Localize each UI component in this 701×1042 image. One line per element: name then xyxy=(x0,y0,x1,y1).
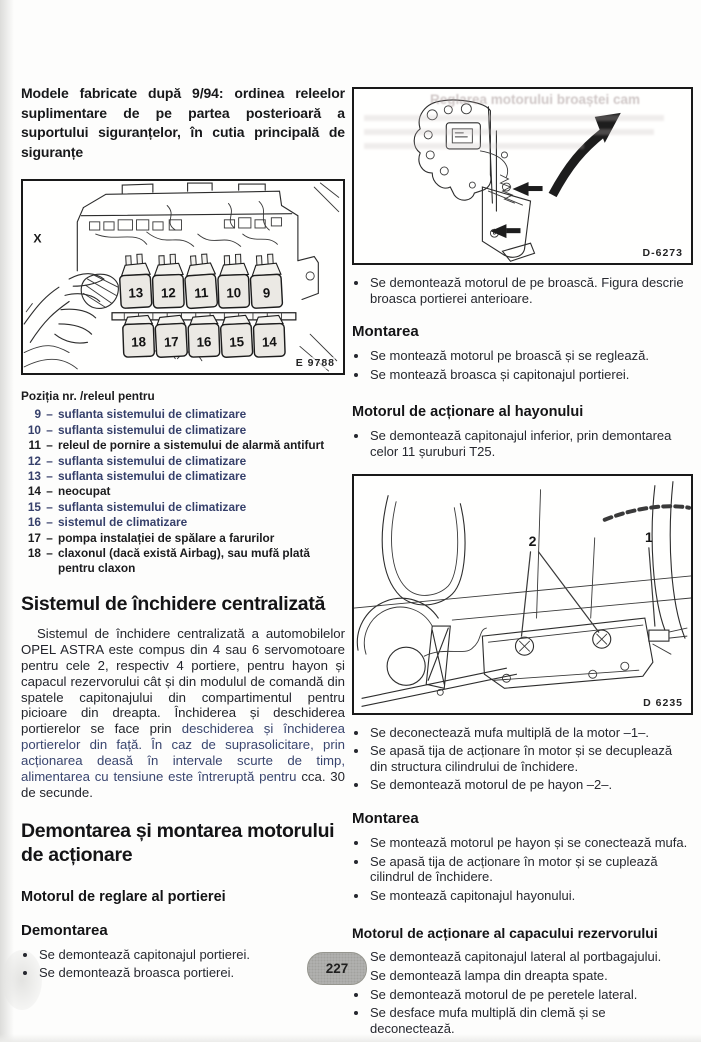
subheading-fuel-cap-motor: Motorul de acționare al capacului rezerv… xyxy=(352,925,693,941)
subheading-tailgate-motor: Motorul de acționare al hayonului xyxy=(352,404,693,420)
fuse-box-illustration: 13 12 11 10 xyxy=(23,181,343,373)
bleed-through-line xyxy=(364,115,664,121)
relay-11: 11 xyxy=(183,254,217,309)
relay-9: 9 xyxy=(249,254,282,309)
tailgate-illustration: 2 1 xyxy=(354,476,691,713)
tailgate-steps-intro: Se demontează capitonajul inferior, prin… xyxy=(352,428,693,459)
legend-row: 17–pompa instalației de spălare a faruri… xyxy=(21,531,345,546)
relay-number: 13 xyxy=(128,285,144,301)
relay-12: 12 xyxy=(152,254,184,308)
legend-row: 12–suflanta sistemului de climatizare xyxy=(21,454,345,469)
legend-row: 16–sistemul de climatizare xyxy=(21,515,345,530)
list-item: Se demontează capitonajul portierei. xyxy=(38,947,345,963)
left-column: Modele fabricate după 9/94: ordinea rele… xyxy=(21,84,345,981)
list-item: Se demontează motorul de pe hayon –2–. xyxy=(369,777,693,793)
figure-tailgate-motor: 2 1 D 6235 xyxy=(352,474,693,715)
subheading-montarea-2: Montarea xyxy=(352,810,693,827)
page-number-badge: 227 xyxy=(307,952,367,985)
list-item: Se demontează capitonajul lateral al por… xyxy=(369,949,693,965)
bleed-through-line xyxy=(364,143,584,149)
tailgate-install-steps: Se montează motorul pe hayon și se conec… xyxy=(352,835,693,903)
list-item: Se demontează motorul de pe peretele lat… xyxy=(369,987,693,1003)
relay-number: 17 xyxy=(164,334,180,350)
legend-row: 11–releul de pornire a sistemului de ala… xyxy=(21,438,345,453)
legend-row: 15–suflanta sistemului de climatizare xyxy=(21,500,345,515)
tailgate-removal-steps: Se deconectează mufa multiplă de la moto… xyxy=(352,725,693,793)
list-item: Se montează capitonajul hayonului. xyxy=(369,888,693,904)
list-item: Se montează motorul pe hayon și se conec… xyxy=(369,835,693,851)
legend-row: 18–claxonul (dacă există Airbag), sau mu… xyxy=(21,546,345,577)
figure-fuse-box: 13 12 11 10 xyxy=(21,179,345,375)
figure-door-lock-motor: Reglarea motorului broaștei cam xyxy=(352,87,693,265)
scan-edge-shadow xyxy=(0,0,14,1042)
page-number: 227 xyxy=(326,961,349,976)
bleed-through-line xyxy=(364,129,654,135)
subheading-door-motor: Motorul de reglare al portierei xyxy=(21,889,345,905)
relay-18: 18 xyxy=(122,315,154,357)
list-item: Se apasă tija de acționare în motor și s… xyxy=(369,854,693,885)
relay-10: 10 xyxy=(217,254,249,308)
central-locking-paragraph: Sistemul de închidere centralizată a aut… xyxy=(21,626,345,801)
relay-number: 10 xyxy=(226,285,241,301)
lock-motor-removal-steps: Se demontează motorul de pe broască. Fig… xyxy=(352,275,693,306)
legend-row: 10–suflanta sistemului de climatizare xyxy=(21,423,345,438)
manual-page: { "colors": { "ink": "#1c1c1e", "blue_te… xyxy=(0,0,701,1042)
list-item: Se demontează motorul de pe broască. Fig… xyxy=(369,275,693,306)
legend-row: 13–suflanta sistemului de climatizare xyxy=(21,469,345,484)
list-item: Se demontează lampa din dreapta spate. xyxy=(369,968,693,984)
relay-15: 15 xyxy=(220,315,253,357)
relay-number: 12 xyxy=(161,285,176,301)
callout-2: 2 xyxy=(529,532,537,548)
fuel-cap-steps: Se demontează capitonajul lateral al por… xyxy=(352,949,693,1036)
list-item: Se demontează capitonajul inferior, prin… xyxy=(369,428,693,459)
list-item: Se montează broasca și capitonajul porti… xyxy=(369,367,693,383)
callout-1: 1 xyxy=(645,528,653,544)
relay-17: 17 xyxy=(155,315,188,357)
legend-row: 14–neocupat xyxy=(21,484,345,499)
intro-heading: Modele fabricate după 9/94: ordinea rele… xyxy=(21,84,345,162)
relay-13: 13 xyxy=(119,254,152,309)
x-marker-label: X xyxy=(33,231,42,245)
list-item: Se montează motorul pe broască și se reg… xyxy=(369,348,693,364)
list-item: Se demontează broasca portierei. xyxy=(38,965,345,981)
figure-code: E 9788 xyxy=(296,357,335,369)
relay-number: 15 xyxy=(229,334,245,350)
list-item: Se deconectează mufa multiplă de la moto… xyxy=(369,725,693,741)
list-item: Se apasă tija de acționare în motor și s… xyxy=(369,743,693,774)
section-heading-motor-removal: Demontarea și montarea motorului de acți… xyxy=(21,819,345,867)
legend-row: 9–suflanta sistemului de climatizare xyxy=(21,407,345,422)
figure-code: D-6273 xyxy=(643,247,683,259)
subheading-montarea-1: Montarea xyxy=(352,323,693,340)
relay-number: 14 xyxy=(262,334,278,350)
subheading-demontarea: Demontarea xyxy=(21,922,345,939)
figure-code: D 6235 xyxy=(643,697,683,709)
list-item: Se desface mufa multiplă din clemă și se… xyxy=(369,1005,693,1036)
relay-number: 9 xyxy=(262,285,270,300)
relay-14: 14 xyxy=(253,315,285,357)
relay-number: 16 xyxy=(196,334,211,350)
lock-motor-install-steps: Se montează motorul pe broască și se reg… xyxy=(352,348,693,382)
bleed-through-text: Reglarea motorului broaștei cam xyxy=(430,92,640,107)
door-motor-removal-steps: Se demontează capitonajul portierei. Se … xyxy=(21,947,345,981)
relay-16: 16 xyxy=(188,315,220,357)
relay-legend: Poziția nr. /releul pentru 9–suflanta si… xyxy=(21,389,345,577)
relay-number: 18 xyxy=(131,334,146,350)
right-column: Reglarea motorului broaștei cam xyxy=(352,87,693,1036)
section-heading-central-locking: Sistemul de închidere centralizată xyxy=(21,593,345,616)
relay-number: 11 xyxy=(194,285,210,301)
legend-title: Poziția nr. /releul pentru xyxy=(21,389,345,404)
